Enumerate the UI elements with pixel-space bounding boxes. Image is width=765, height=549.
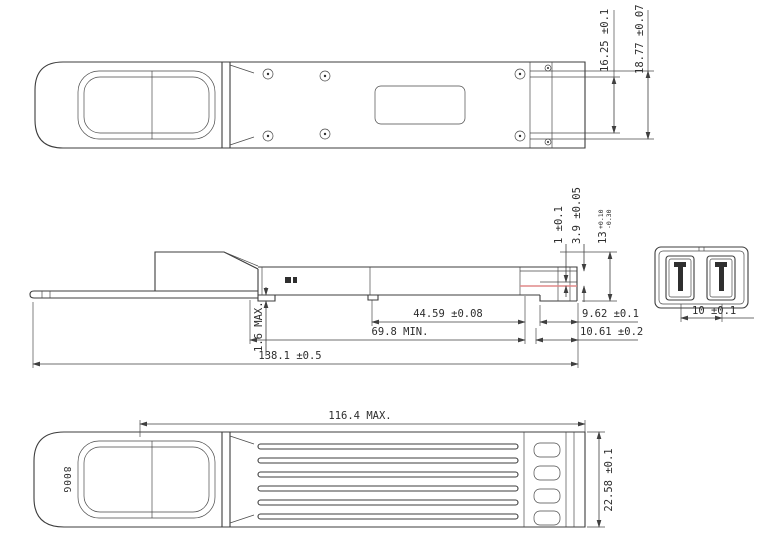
top-view: 16.25 ±0.1 18.77 ±0.07 (35, 4, 654, 148)
dim-front-a: 9.62 ±0.1 (540, 308, 639, 322)
dim-tab-thickness: 1.6 MAX. (253, 287, 266, 356)
dim-height: 13 +0.10 -0.30 (560, 209, 617, 301)
top-tab-ring-outer (78, 71, 215, 139)
end-port-2 (707, 256, 735, 300)
side-latch-bump (368, 295, 378, 300)
dim-step-label: 1 ±0.1 (553, 206, 565, 244)
bottom-tab-ring-outer (78, 441, 215, 518)
dim-port-pitch-label: 10 ±0.1 (692, 305, 736, 317)
dim-front-b-label: 10.61 ±0.2 (580, 326, 643, 338)
dim-port-pitch: 10 ±0.1 (681, 304, 754, 322)
dim-front-b: 10.61 ±0.2 (536, 326, 643, 340)
end-center-notch (699, 247, 704, 251)
dim-finned-length: 116.4 MAX. (140, 410, 585, 437)
top-screws (263, 65, 551, 145)
bottom-body-outline (34, 432, 585, 527)
dim-finned-length-label: 116.4 MAX. (328, 410, 391, 422)
bottom-view: 800G 116.4 MAX. (34, 410, 615, 527)
dim-rail-width-label: 16.25 ±0.1 (599, 9, 611, 72)
top-latch-bevels (230, 65, 254, 145)
dim-tab-thickness-label: 1.6 MAX. (253, 301, 265, 352)
dim-height-tol-plus: +0.10 (597, 209, 605, 229)
top-front-rails (530, 62, 585, 148)
speed-label: 800G (61, 467, 72, 494)
dim-latch-to-front-label: 44.59 ±0.08 (413, 308, 483, 320)
dim-bottom-width: 22.58 ±0.1 (587, 432, 615, 527)
side-bottom-lip (258, 295, 275, 301)
dim-body-min-label: 69.8 MIN. (372, 326, 429, 338)
drawing-canvas: 16.25 ±0.1 18.77 ±0.07 (0, 0, 765, 549)
end-port-1 (666, 256, 694, 300)
dim-height-label: 13 (597, 231, 609, 244)
bottom-latch-bevels (230, 436, 254, 523)
side-marking-1 (285, 277, 291, 283)
dim-top-body-width-label: 18.77 ±0.07 (634, 4, 646, 74)
side-tab-ticks (42, 291, 50, 298)
side-body (258, 267, 577, 301)
side-marking-2 (293, 277, 297, 283)
dim-overall-length: 138.1 ±0.5 (33, 350, 578, 364)
dim-step: 1 ±0.1 (553, 206, 566, 297)
side-handle-bracket (155, 252, 258, 291)
bottom-front-slots (524, 432, 574, 527)
top-tab-ring-inner (84, 77, 209, 133)
side-pull-tab (30, 291, 258, 298)
dim-front-a-label: 9.62 ±0.1 (582, 308, 639, 320)
top-label-window (375, 86, 465, 124)
end-view: 10 ±0.1 (655, 247, 754, 322)
dim-body-min: 69.8 MIN. (250, 326, 525, 340)
dim-bottom-width-label: 22.58 ±0.1 (603, 448, 615, 511)
dim-height-tol-minus: -0.30 (605, 209, 613, 229)
top-body-outline (35, 62, 585, 148)
dim-latch-to-front: 44.59 ±0.08 (372, 308, 525, 322)
bottom-tab-ring-inner (84, 447, 209, 512)
transceiver-drawing: 16.25 ±0.1 18.77 ±0.07 (0, 0, 765, 549)
dim-nose-label: 3.9 ±0.05 (571, 187, 583, 244)
side-view: 1 ±0.1 3.9 ±0.05 13 +0.10 -0.30 1.6 MAX. (30, 187, 643, 368)
dim-top-body-width: 18.77 ±0.07 (585, 4, 654, 139)
bottom-heatsink-ribs (258, 444, 518, 519)
dim-overall-length-label: 138.1 ±0.5 (258, 350, 321, 362)
